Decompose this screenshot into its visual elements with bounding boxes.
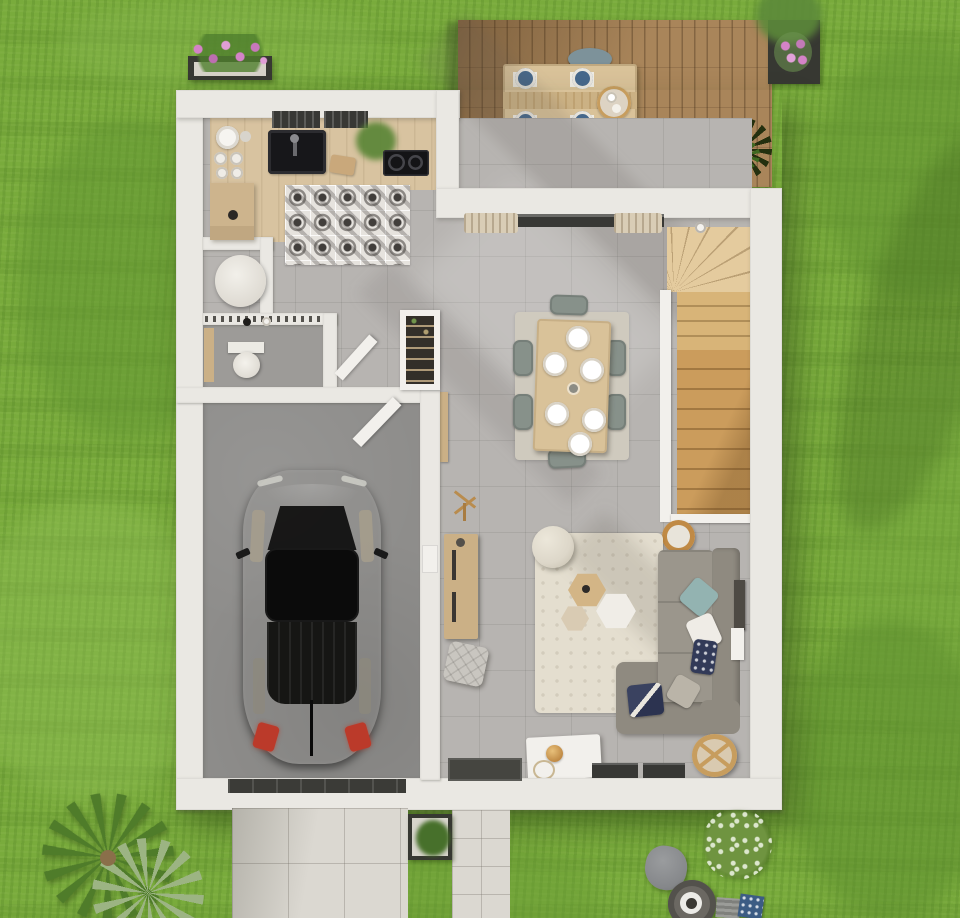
dinner-plate: [580, 358, 604, 382]
toilet-bowl: [233, 352, 260, 378]
car-antenna: [310, 700, 313, 756]
tv-panel: [734, 580, 745, 630]
pouf-ball: [532, 526, 574, 568]
stairs-stringer: [660, 290, 671, 522]
kettle: [228, 210, 238, 220]
amber-lamp: [546, 745, 563, 762]
front-door: [448, 758, 522, 781]
throw-navy: [626, 682, 664, 717]
stairs-flight: [677, 350, 752, 515]
wall-kitchen-right: [436, 90, 459, 190]
dinner-plate: [566, 326, 590, 350]
car-side-glass: [359, 510, 375, 563]
potted-flowers-blooms: [774, 32, 812, 72]
garage-door: [228, 779, 406, 793]
dinner-plate: [582, 408, 606, 432]
bay-window-bottom: [592, 763, 638, 778]
table-vase: [569, 384, 578, 393]
patterned-tile-rug: [285, 185, 410, 265]
cup-stack: [231, 167, 243, 179]
blue-plate: [572, 68, 593, 89]
outdoor-mat-blue: [738, 893, 765, 918]
car: [243, 470, 381, 764]
cup-stack: [230, 152, 243, 165]
cutting-board: [329, 154, 357, 176]
wall-garage-right: [420, 390, 440, 780]
south-planter-plant: [416, 820, 450, 856]
toilet-roll: [262, 317, 271, 326]
kitchen-window: [272, 111, 320, 128]
dish-small: [240, 131, 251, 142]
open-door-frame: [440, 392, 448, 462]
dining-chair: [513, 340, 533, 376]
dish-stack-large: [216, 126, 239, 149]
dining-chair: [606, 394, 626, 430]
floor-lamp-ring: [662, 520, 695, 553]
bathroom-floor: [203, 315, 325, 392]
car-side-glass: [253, 658, 265, 714]
coat-rack-stem: [463, 503, 466, 521]
wall-bath-right: [323, 313, 337, 392]
sink-faucet-base: [290, 134, 299, 143]
cup-stack: [214, 152, 227, 165]
sideboard-handle: [452, 550, 456, 580]
car-rear-window: [267, 622, 357, 704]
curtain: [464, 213, 518, 233]
sofa-armrest: [700, 700, 740, 734]
driveway-shade: [232, 808, 408, 918]
grass-patch: [790, 620, 960, 918]
garage-side-door-marker: [422, 545, 438, 573]
burner: [408, 155, 423, 170]
palm-trunk: [100, 850, 116, 866]
wall-left: [176, 90, 203, 810]
quilted-pouf: [442, 640, 489, 687]
cup-stack: [216, 167, 228, 179]
burner: [388, 154, 405, 171]
front-walkway: [452, 810, 510, 918]
stairs-winder-top: [667, 227, 752, 292]
door-stop: [695, 222, 706, 233]
pantry-shelves: [406, 316, 434, 384]
bay-window-bottom: [643, 763, 685, 778]
kitchen-window: [324, 111, 368, 128]
curtain: [614, 213, 662, 233]
flower-box-blooms: [188, 34, 272, 72]
hex-table-vase: [582, 585, 590, 593]
floor-plan-render: [0, 0, 960, 918]
stairs-winder-mid: [677, 292, 752, 350]
sideboard-handle: [452, 592, 456, 622]
car-side-glass: [359, 658, 371, 714]
car-roof: [265, 548, 359, 622]
wall-sill: [731, 628, 744, 660]
dinner-plate: [568, 432, 592, 456]
sideboard-decor: [456, 538, 465, 547]
sideboard: [444, 534, 478, 639]
car-side-glass: [250, 510, 266, 563]
dining-chair: [513, 394, 533, 430]
bath-accessory: [243, 318, 251, 326]
dining-chair: [550, 294, 589, 315]
wall-right: [750, 188, 782, 810]
wire-tray: [533, 760, 555, 780]
olive-bush: [702, 808, 772, 880]
dinner-plate: [543, 352, 567, 376]
round-planter-center: [686, 898, 697, 909]
bath-vanity: [204, 328, 214, 382]
cushion-navy-pattern: [690, 638, 718, 675]
wc-round-fixture: [215, 255, 266, 307]
dinner-plate: [545, 402, 569, 426]
